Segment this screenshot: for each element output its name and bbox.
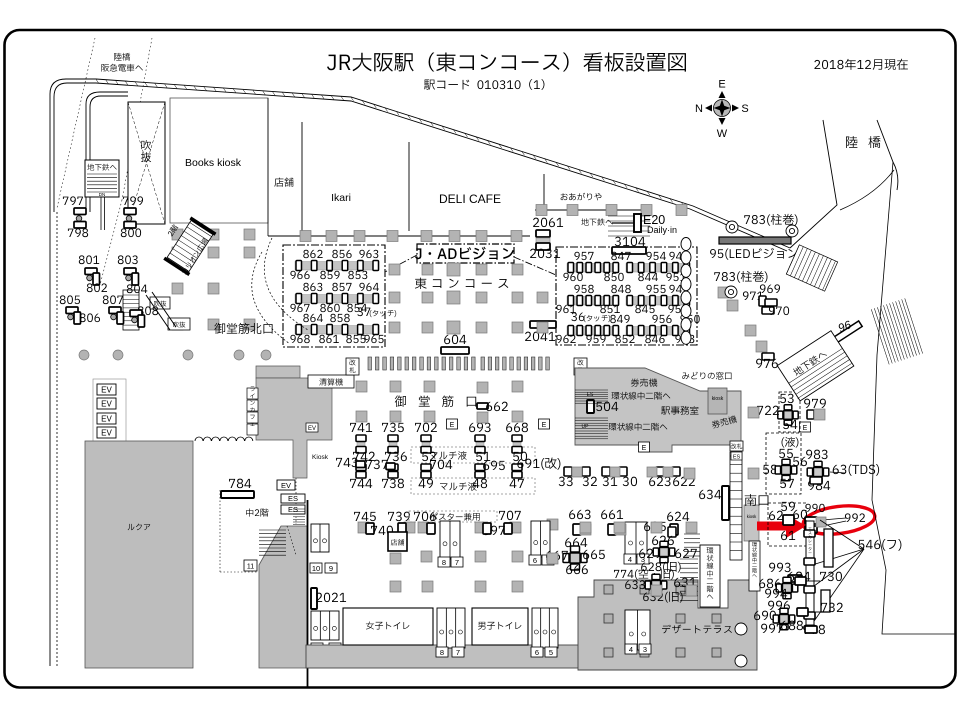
svg-text:4: 4 bbox=[628, 555, 632, 564]
svg-text:Books kiosk: Books kiosk bbox=[185, 157, 242, 169]
svg-text:S: S bbox=[741, 103, 748, 115]
svg-text:E: E bbox=[718, 79, 725, 91]
svg-text:EV: EV bbox=[101, 415, 112, 424]
svg-text:8: 8 bbox=[440, 648, 444, 657]
svg-text:ES: ES bbox=[288, 494, 298, 503]
svg-text:6: 6 bbox=[535, 648, 539, 657]
svg-text:4: 4 bbox=[629, 645, 633, 654]
svg-text:W: W bbox=[717, 128, 728, 140]
svg-text:EV: EV bbox=[101, 429, 112, 438]
svg-text:6: 6 bbox=[533, 556, 537, 565]
svg-text:Ikari: Ikari bbox=[331, 192, 351, 204]
svg-text:7: 7 bbox=[456, 648, 460, 657]
svg-text:5: 5 bbox=[549, 648, 553, 657]
svg-text:3: 3 bbox=[643, 645, 647, 654]
svg-text:Daily·in: Daily·in bbox=[647, 225, 677, 235]
svg-text:EV: EV bbox=[281, 481, 291, 490]
svg-text:UP: UP bbox=[582, 424, 590, 430]
svg-text:10: 10 bbox=[312, 564, 320, 573]
svg-text:kiosk: kiosk bbox=[712, 396, 724, 402]
svg-text:ES: ES bbox=[288, 505, 298, 514]
svg-text:7: 7 bbox=[455, 558, 459, 567]
svg-text:N: N bbox=[695, 103, 703, 115]
svg-text:9: 9 bbox=[329, 564, 333, 573]
svg-text:DELI CAFE: DELI CAFE bbox=[439, 192, 501, 206]
svg-text:E: E bbox=[803, 425, 808, 432]
svg-text:DN: DN bbox=[99, 192, 106, 197]
svg-text:kiosk: kiosk bbox=[747, 514, 757, 519]
svg-text:E: E bbox=[450, 422, 455, 429]
svg-text:E: E bbox=[542, 422, 547, 429]
svg-text:11: 11 bbox=[247, 564, 254, 571]
svg-text:Kiosk: Kiosk bbox=[312, 454, 329, 461]
svg-text:EV: EV bbox=[101, 400, 112, 409]
svg-text:EV: EV bbox=[101, 386, 112, 395]
svg-text:8: 8 bbox=[442, 558, 446, 567]
svg-text:EV: EV bbox=[308, 426, 316, 432]
svg-text:ES: ES bbox=[733, 455, 741, 461]
svg-text:ES: ES bbox=[587, 392, 594, 398]
svg-text:E: E bbox=[642, 445, 647, 452]
